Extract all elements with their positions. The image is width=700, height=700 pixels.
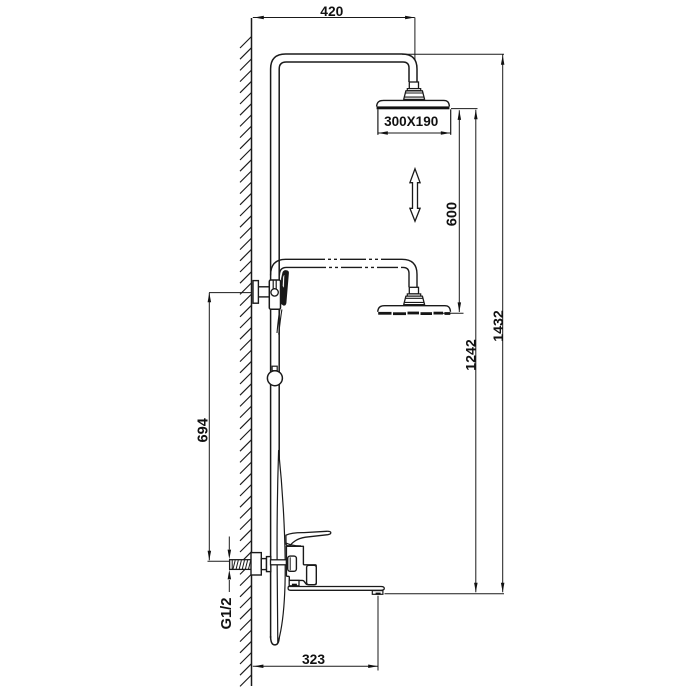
svg-text:300X190: 300X190	[384, 114, 438, 129]
svg-text:694: 694	[195, 417, 211, 442]
svg-text:420: 420	[320, 4, 343, 19]
svg-text:1432: 1432	[491, 310, 507, 342]
svg-text:G1/2: G1/2	[219, 597, 235, 629]
svg-text:323: 323	[302, 652, 325, 667]
svg-text:600: 600	[445, 202, 461, 226]
svg-text:1242: 1242	[463, 339, 479, 371]
